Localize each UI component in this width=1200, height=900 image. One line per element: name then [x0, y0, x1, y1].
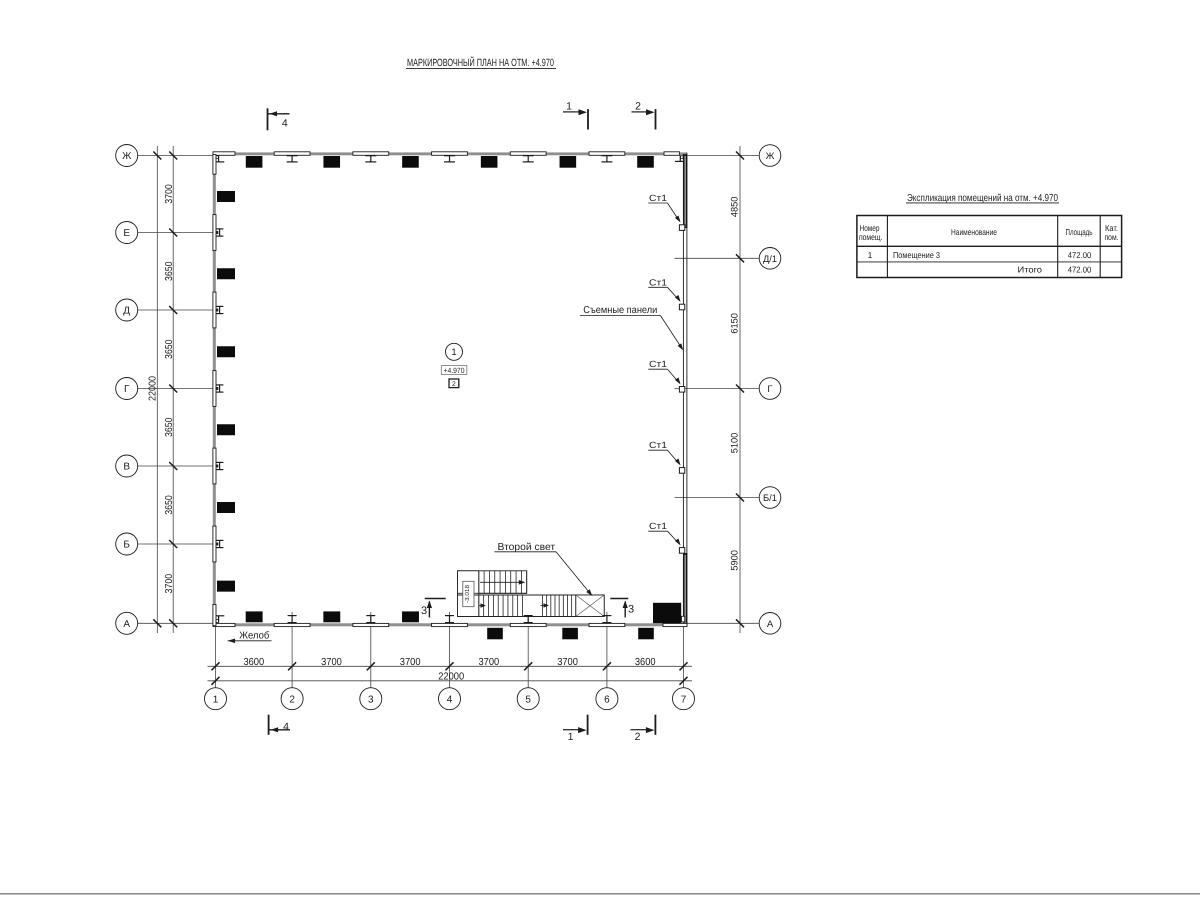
svg-text:3700: 3700: [164, 573, 175, 593]
svg-text:Съемные панели: Съемные панели: [583, 305, 657, 316]
svg-text:Ст1: Ст1: [649, 440, 667, 450]
svg-text:Наименование: Наименование: [951, 227, 997, 237]
svg-text:3: 3: [421, 605, 427, 617]
svg-text:6150: 6150: [729, 313, 740, 334]
svg-text:5100: 5100: [729, 433, 740, 454]
svg-text:3650: 3650: [164, 339, 175, 359]
svg-text:3600: 3600: [243, 657, 264, 668]
svg-text:Г: Г: [124, 384, 130, 395]
svg-text:5900: 5900: [729, 550, 740, 571]
svg-text:Экспликация помещений на отм.: Экспликация помещений на отм. +4.970: [907, 193, 1058, 204]
svg-text:Г: Г: [767, 384, 772, 395]
svg-text:+4.970: +4.970: [444, 366, 465, 375]
svg-text:4: 4: [282, 118, 288, 130]
svg-text:7: 7: [681, 694, 687, 705]
svg-text:-3.018: -3.018: [464, 584, 471, 603]
svg-text:Итого: Итого: [1018, 265, 1043, 275]
svg-text:6: 6: [604, 694, 610, 705]
svg-text:3600: 3600: [635, 657, 656, 668]
svg-text:4850: 4850: [729, 197, 740, 218]
svg-text:1: 1: [568, 731, 574, 743]
svg-text:Ж: Ж: [122, 151, 132, 162]
svg-text:Желоб: Желоб: [239, 630, 269, 641]
svg-text:пом.: пом.: [1105, 232, 1119, 242]
svg-text:А: А: [123, 619, 130, 630]
svg-text:Д: Д: [123, 306, 130, 317]
svg-text:Помещение 3: Помещение 3: [893, 250, 940, 260]
svg-text:Б: Б: [123, 540, 130, 551]
svg-text:Площадь: Площадь: [1066, 227, 1093, 237]
svg-text:1: 1: [213, 694, 219, 705]
svg-text:2: 2: [452, 381, 456, 388]
svg-text:2: 2: [635, 101, 641, 113]
svg-text:3: 3: [628, 604, 634, 616]
svg-text:Ж: Ж: [766, 151, 775, 162]
svg-text:1: 1: [868, 250, 873, 260]
svg-text:2: 2: [289, 694, 295, 705]
svg-text:Д/1: Д/1: [763, 254, 777, 265]
svg-text:Ст1: Ст1: [649, 277, 667, 287]
svg-text:3700: 3700: [400, 657, 421, 668]
svg-text:2: 2: [635, 731, 641, 743]
svg-text:3650: 3650: [164, 495, 175, 515]
svg-text:472.00: 472.00: [1068, 250, 1092, 260]
svg-text:4: 4: [283, 721, 289, 733]
svg-text:3650: 3650: [164, 417, 175, 437]
svg-text:3700: 3700: [321, 657, 342, 668]
svg-text:Ст1: Ст1: [649, 521, 667, 531]
svg-text:помещ.: помещ.: [859, 232, 883, 242]
svg-text:3700: 3700: [479, 657, 500, 668]
svg-text:22000: 22000: [148, 376, 159, 401]
svg-text:Е: Е: [123, 228, 130, 239]
svg-text:3700: 3700: [557, 657, 578, 668]
svg-text:472.00: 472.00: [1068, 265, 1092, 275]
svg-text:3: 3: [368, 694, 374, 705]
svg-text:А: А: [767, 619, 774, 630]
svg-text:5: 5: [525, 694, 531, 705]
svg-text:1: 1: [566, 101, 572, 113]
svg-text:Ст1: Ст1: [649, 359, 667, 369]
svg-text:1: 1: [451, 347, 456, 358]
svg-text:4: 4: [447, 694, 453, 705]
svg-text:В: В: [123, 462, 130, 473]
svg-text:Б/1: Б/1: [763, 493, 777, 504]
svg-text:Ст1: Ст1: [649, 193, 667, 203]
svg-text:22000: 22000: [438, 672, 464, 683]
svg-text:3700: 3700: [164, 184, 175, 204]
svg-text:МАРКИРОВОЧНЫЙ ПЛАН НА ОТМ. +4.: МАРКИРОВОЧНЫЙ ПЛАН НА ОТМ. +4.970: [407, 56, 554, 69]
svg-text:3650: 3650: [164, 261, 175, 281]
